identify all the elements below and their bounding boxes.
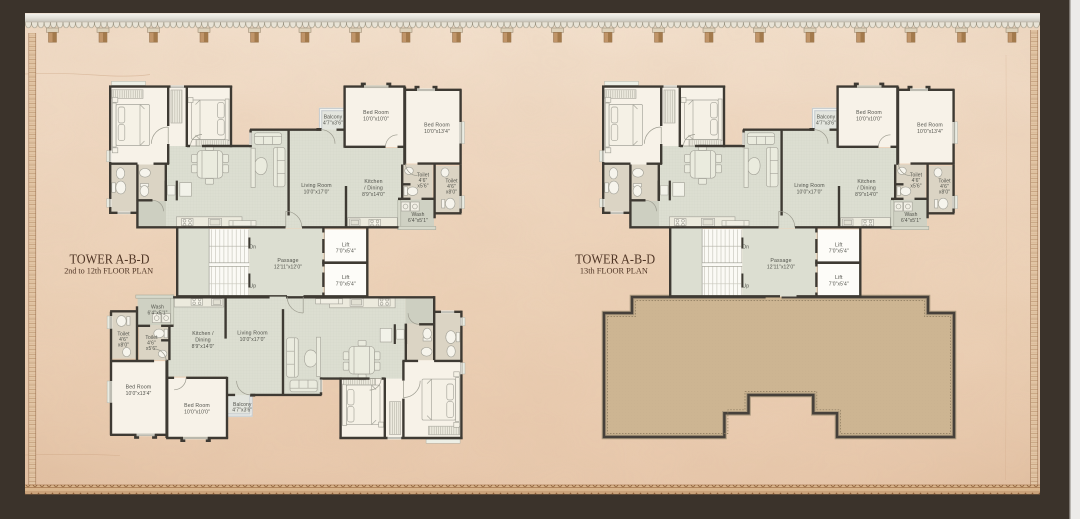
svg-text:Bed Room: Bed Room — [126, 384, 152, 390]
svg-text:Bed Room: Bed Room — [184, 403, 210, 409]
svg-text:x8'0": x8'0" — [118, 342, 129, 348]
svg-text:x5'6": x5'6" — [146, 346, 157, 352]
svg-text:4'7"x3'6": 4'7"x3'6" — [232, 408, 252, 414]
svg-text:10'0"x13'4": 10'0"x13'4" — [126, 391, 152, 397]
svg-text:6'4"x5'1": 6'4"x5'1" — [148, 310, 168, 316]
svg-text:Dining: Dining — [195, 337, 211, 343]
svg-text:2nd to 12th FLOOR PLAN: 2nd to 12th FLOOR PLAN — [64, 266, 154, 276]
svg-text:10'0"x10'0": 10'0"x10'0" — [184, 409, 210, 415]
svg-text:13th FLOOR PLAN: 13th FLOOR PLAN — [580, 266, 649, 276]
svg-text:Living Room: Living Room — [237, 330, 267, 336]
svg-text:Kitchen /: Kitchen / — [192, 331, 214, 337]
svg-text:10'0"x17'0": 10'0"x17'0" — [240, 337, 266, 343]
svg-text:8'9"x14'0": 8'9"x14'0" — [192, 344, 215, 350]
